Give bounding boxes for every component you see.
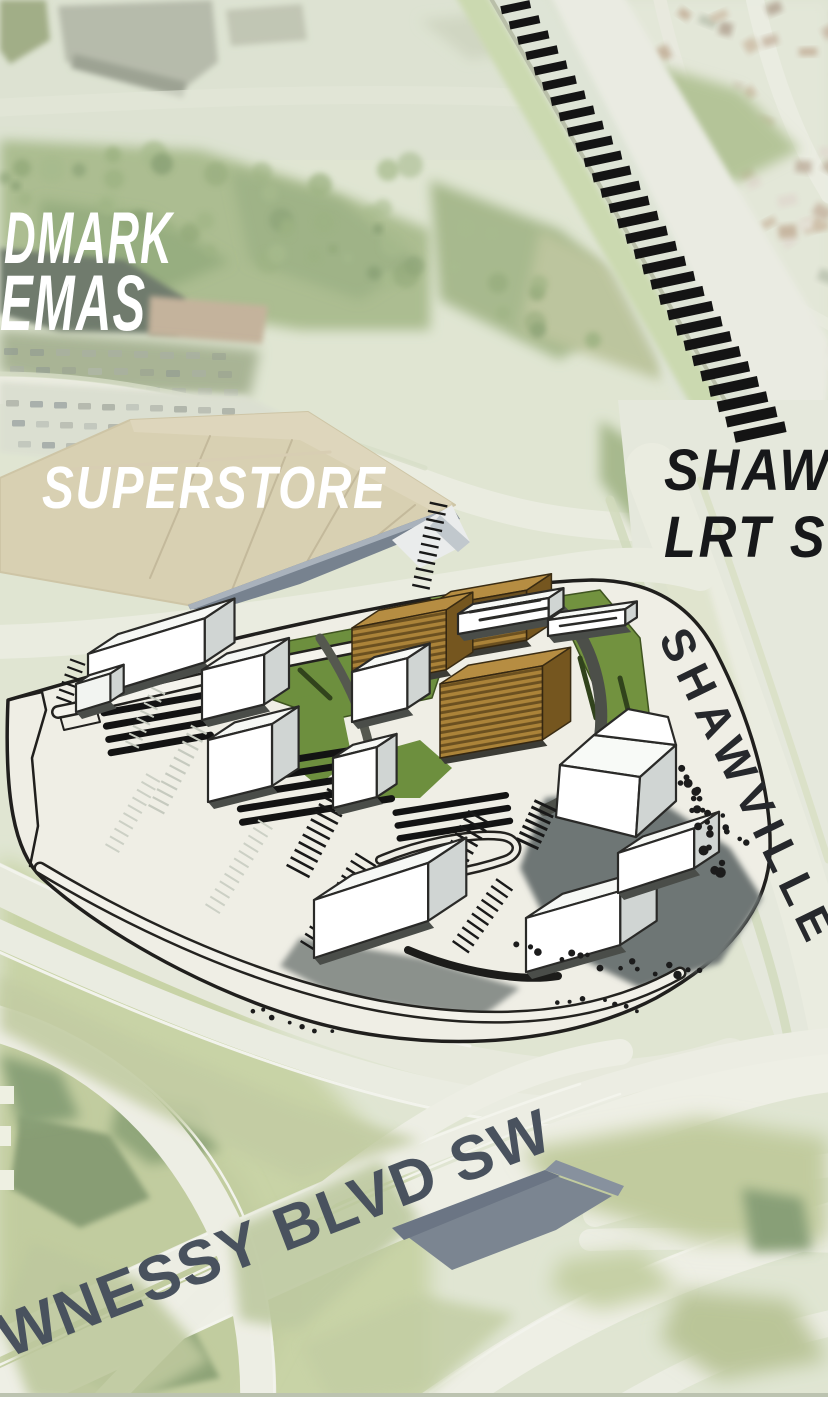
svg-text:SHAWN: SHAWN	[664, 437, 828, 502]
svg-text:EMAS: EMAS	[0, 259, 146, 347]
svg-text:LRT STA: LRT STA	[664, 504, 828, 569]
svg-text:SUPERSTORE: SUPERSTORE	[42, 455, 387, 521]
